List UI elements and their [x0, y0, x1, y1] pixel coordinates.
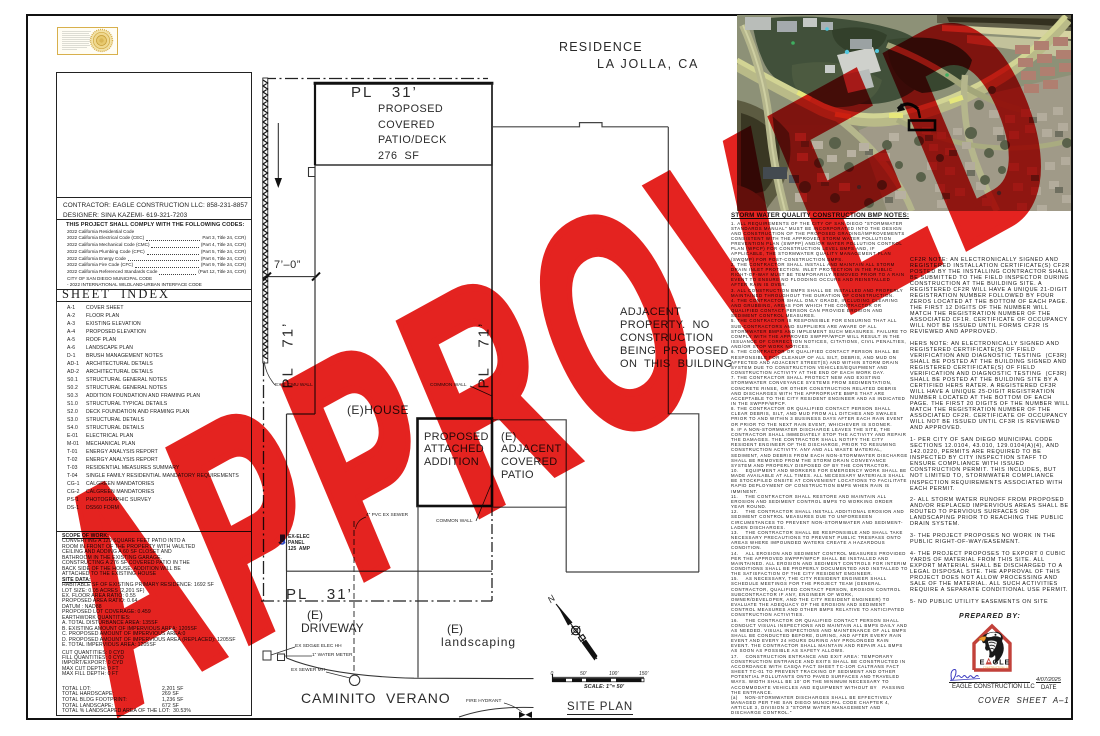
svg-text:E: E	[980, 658, 986, 667]
svg-text:GLE: GLE	[993, 658, 1011, 667]
svg-text:CONSTRUCTION LLC: CONSTRUCTION LLC	[983, 666, 1009, 670]
